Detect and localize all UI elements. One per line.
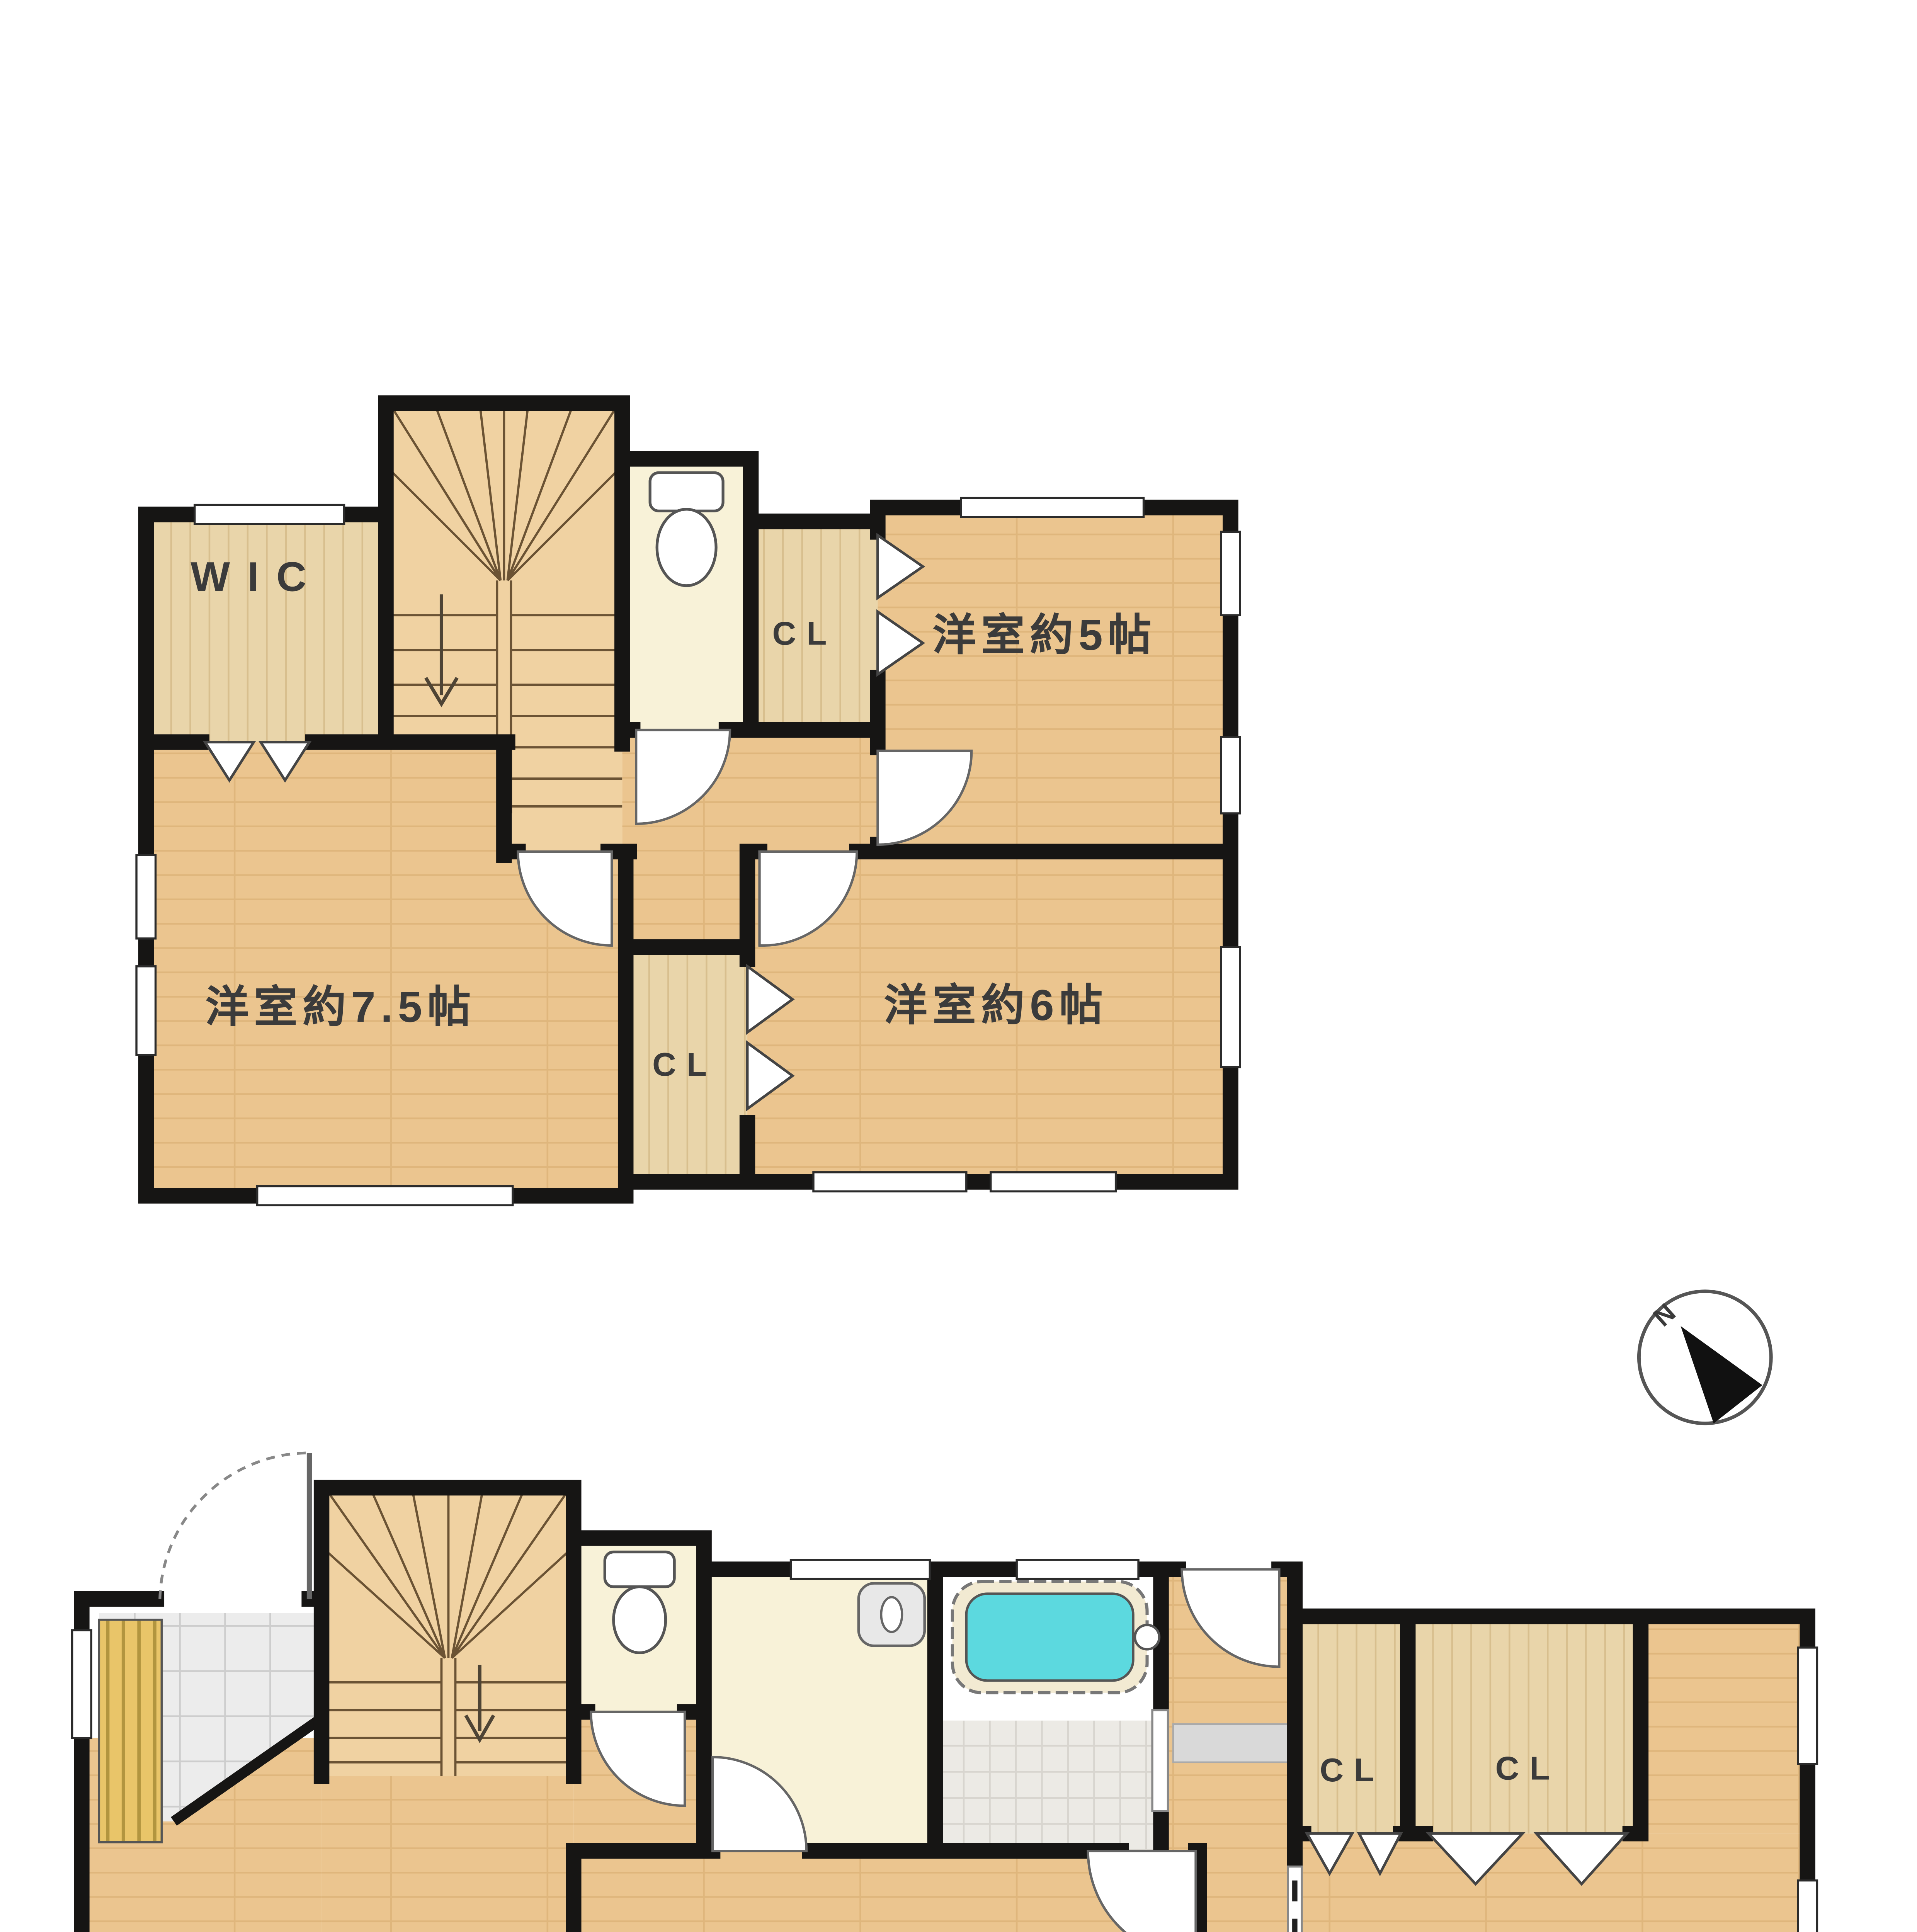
floorplan-page: WIC CL 洋室約5帖 洋室約7.5帖 CL 洋室約6帖 LDK約16帖 洋室… [0,0,1917,1932]
closet-north-label: CL [772,617,837,655]
closet-b-label: CL [1495,1752,1560,1790]
floorplan-canvas: WIC CL 洋室約5帖 洋室約7.5帖 CL 洋室約6帖 LDK約16帖 洋室… [0,0,1917,1932]
entry-door [160,1453,310,1599]
closet-a-label: CL [1320,1753,1385,1792]
closet-mid-label: CL [652,1048,717,1086]
shoe-cabinet [99,1620,162,1842]
bathtub-icon [953,1582,1159,1693]
bedroom75-label: 洋室約7.5帖 [205,973,476,1036]
bedroom6-label: 洋室約6帖 [884,971,1108,1034]
bathroom-tile [935,1721,1161,1851]
closet-b-floor [1415,1616,1641,1833]
bedroom5-label: 洋室約5帖 [932,601,1157,664]
bath-mat [1173,1724,1298,1762]
bedroom85-arm-floor [1641,1616,1808,1833]
floorplan-drawing [0,0,1917,1932]
hall-1f-floor [321,1776,573,1932]
toilet-2f-icon [650,473,723,585]
stairs-2f-landing [504,744,622,855]
closet-a-floor [1295,1616,1408,1833]
wic-label: WIC [191,554,324,603]
hall-2f-floor-b [626,852,747,947]
washbasin-icon [859,1583,925,1646]
wic-floor [146,514,386,742]
floor-1f [72,1453,1817,1932]
corridor-b-floor [1199,1851,1294,1932]
